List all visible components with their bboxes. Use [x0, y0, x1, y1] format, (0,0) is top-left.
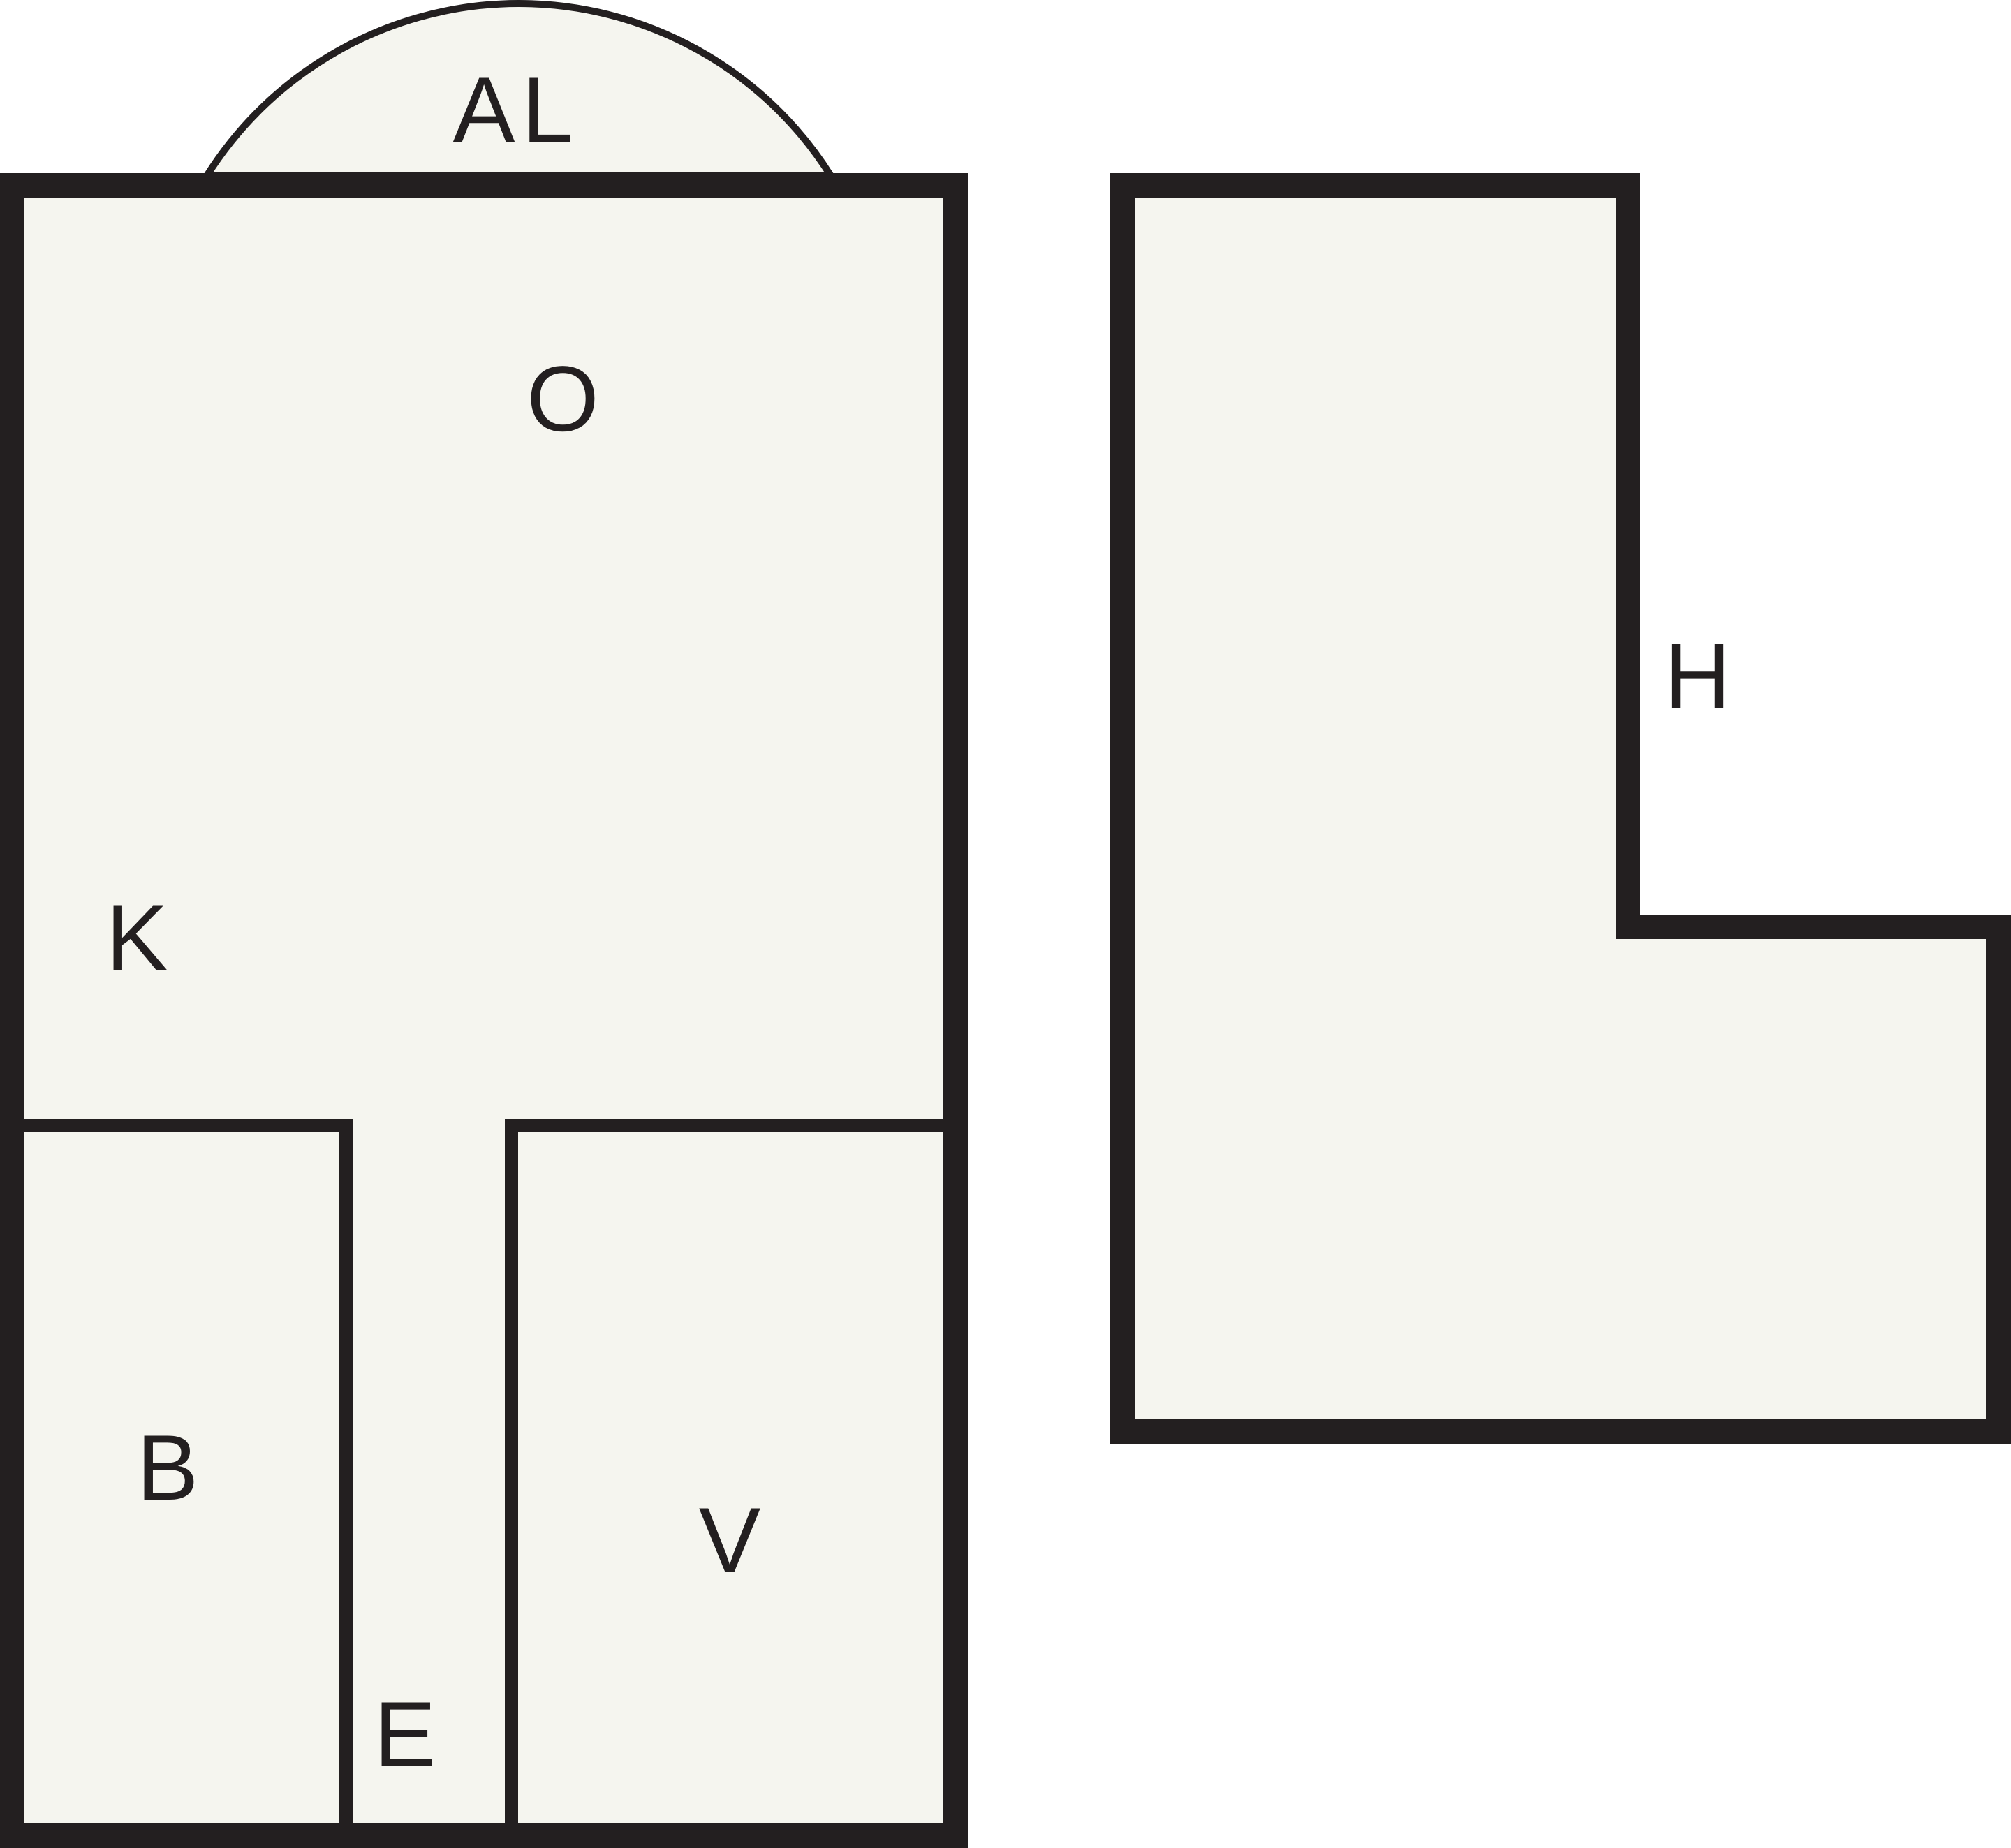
svg-text:E: E	[374, 1683, 436, 1787]
svg-text:B: B	[137, 1417, 199, 1520]
svg-text:H: H	[1664, 625, 1731, 728]
svg-text:AL: AL	[453, 59, 581, 162]
svg-text:O: O	[526, 348, 598, 451]
svg-text:V: V	[699, 1489, 761, 1592]
svg-text:K: K	[106, 887, 168, 990]
